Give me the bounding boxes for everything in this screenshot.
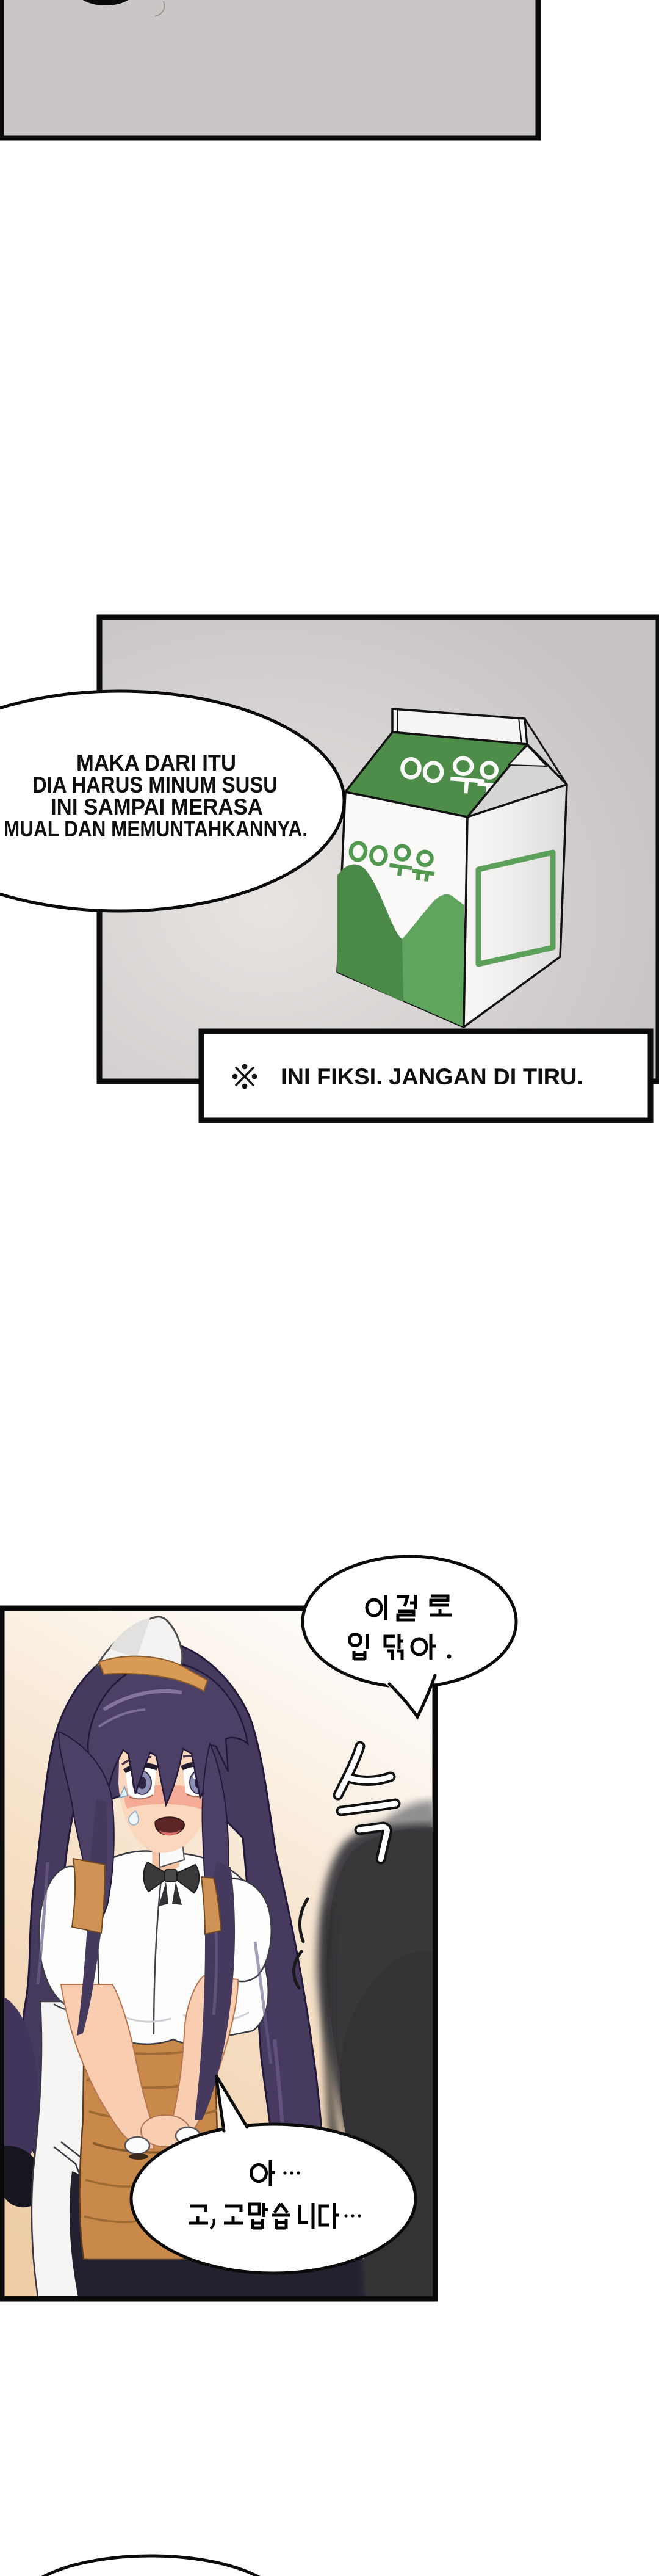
svg-text:INI SAMPAI MERASA: INI SAMPAI MERASA xyxy=(51,794,263,819)
svg-text:INI FIKSI. JANGAN DI TIRU.: INI FIKSI. JANGAN DI TIRU. xyxy=(281,1064,583,1089)
svg-text:DIA HARUS MINUM SUSU: DIA HARUS MINUM SUSU xyxy=(32,772,278,797)
svg-text:MAKA DARI ITU: MAKA DARI ITU xyxy=(76,750,236,775)
svg-text:MUAL DAN MEMUNTAHKANNYA.: MUAL DAN MEMUNTAHKANNYA. xyxy=(4,816,308,841)
